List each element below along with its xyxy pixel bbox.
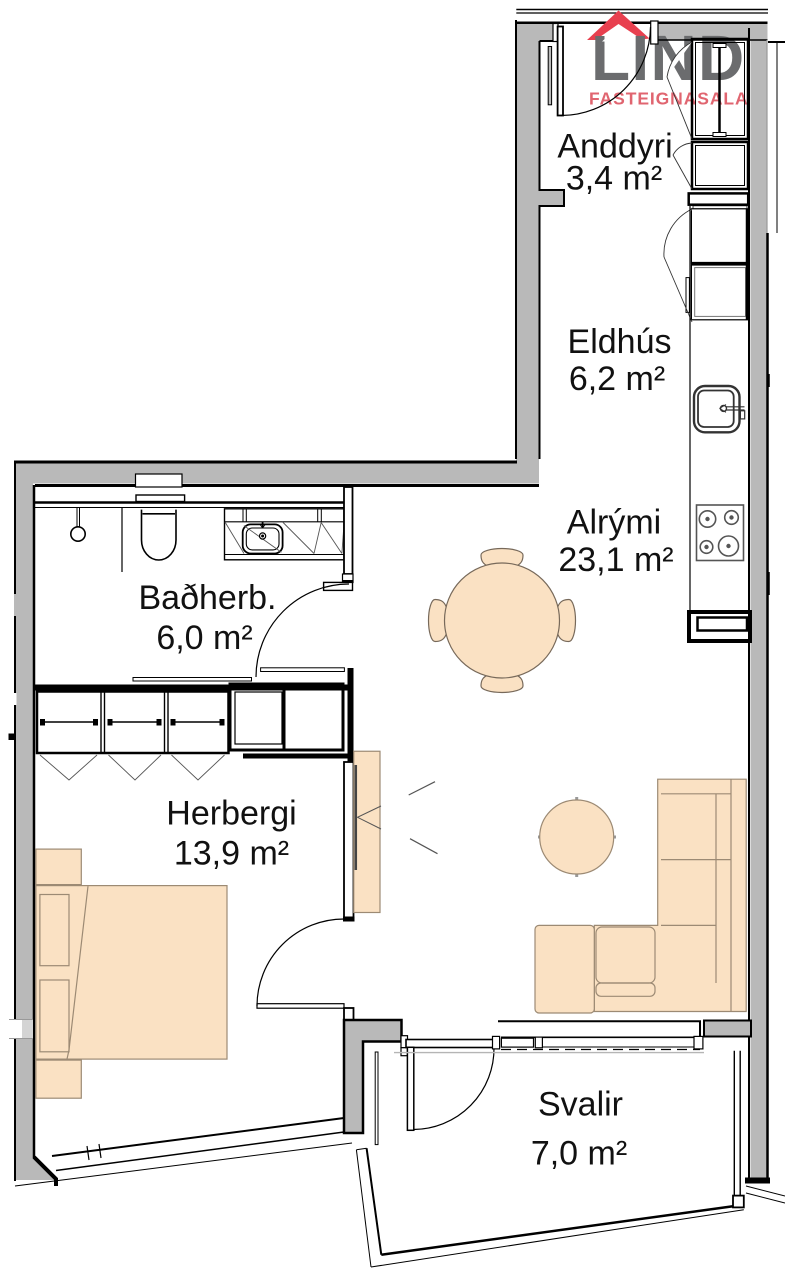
- svg-text:6,0 m²: 6,0 m²: [156, 619, 252, 657]
- svg-text:6,2 m²: 6,2 m²: [569, 360, 665, 398]
- svg-text:7,0 m²: 7,0 m²: [531, 1135, 627, 1173]
- svg-text:Baðherb.: Baðherb.: [139, 579, 277, 617]
- svg-text:Eldhús: Eldhús: [568, 323, 672, 361]
- svg-text:Herbergi: Herbergi: [166, 795, 296, 833]
- svg-text:13,9 m²: 13,9 m²: [174, 835, 289, 873]
- svg-text:3,4 m²: 3,4 m²: [566, 160, 662, 198]
- svg-text:Alrými: Alrými: [567, 504, 661, 542]
- svg-text:23,1 m²: 23,1 m²: [558, 541, 673, 579]
- svg-text:Svalir: Svalir: [538, 1086, 623, 1124]
